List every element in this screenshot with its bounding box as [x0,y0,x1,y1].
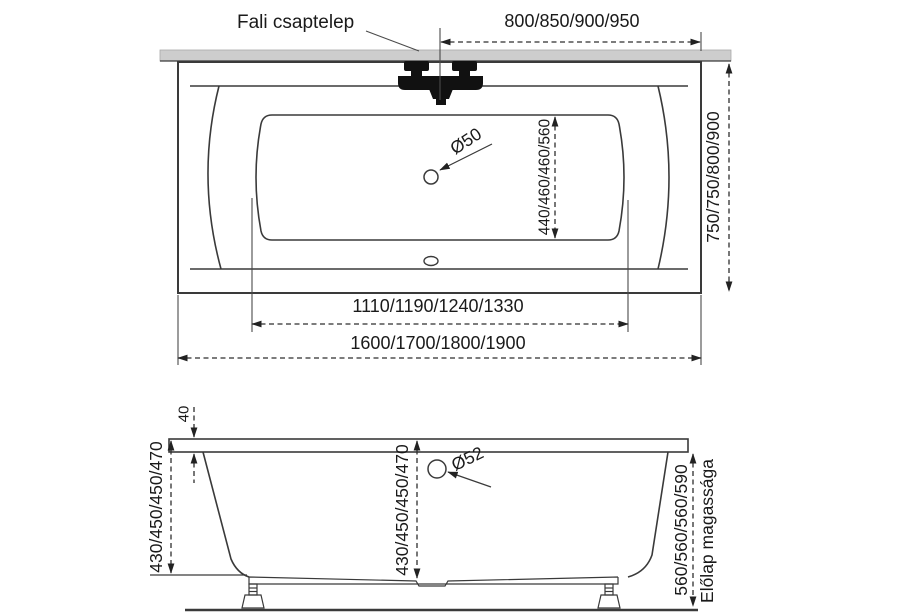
faucet-stem-right [459,70,470,77]
panel-height-values: 560/560/560/590 [671,464,691,596]
rim-height-label: 40 [175,406,192,423]
outer-width-label: 750/750/800/900 [703,111,723,243]
wall-strip [160,50,731,61]
faucet-spout [429,89,453,105]
side-view: 40 430/450/450/470 430/450/450/470 Ø52 5… [146,406,717,610]
front-panel-height-label: Előlap magassága [697,459,717,603]
top-view: Ø50 440/460/460/560 Fali csaptelep 800/8… [160,11,731,365]
left-foot-base [242,595,264,608]
depth-center-label: 430/450/450/470 [392,444,412,576]
faucet-handle-right [452,61,477,71]
right-end-curve [658,86,669,269]
faucet-stem-left [411,70,422,77]
left-foot [242,584,264,608]
wall-faucet-leader [366,31,419,51]
support-frame [249,577,618,586]
depth-left-label: 430/450/450/470 [146,441,166,573]
drain-diameter-label: Ø50 [446,123,485,158]
tub-right-wall [628,452,668,577]
right-foot-stem [605,584,613,595]
bathtub-technical-drawing: Ø50 440/460/460/560 Fali csaptelep 800/8… [0,0,900,614]
faucet-distance-label: 800/850/900/950 [504,11,639,31]
faucet-handle-left [404,61,429,71]
wall-faucet-label: Fali csaptelep [237,12,354,33]
outer-length-label: 1600/1700/1800/1900 [350,333,525,353]
overflow-marker [424,257,438,266]
overflow-diameter-label: Ø52 [448,442,486,474]
overflow-hole [428,460,446,478]
rim-band [169,439,688,452]
right-foot-base [598,595,620,608]
inner-length-label: 1110/1190/1240/1330 [352,296,523,316]
tub-left-wall [203,452,249,577]
overflow-leader-line [448,472,491,487]
left-foot-stem [249,584,257,595]
drawing-canvas: Ø50 440/460/460/560 Fali csaptelep 800/8… [0,0,900,614]
left-end-curve [208,86,221,269]
basin-outline [256,115,624,240]
drain-distance-label: 440/460/460/560 [536,118,553,235]
right-foot [598,584,620,608]
drain-hole [424,170,438,184]
